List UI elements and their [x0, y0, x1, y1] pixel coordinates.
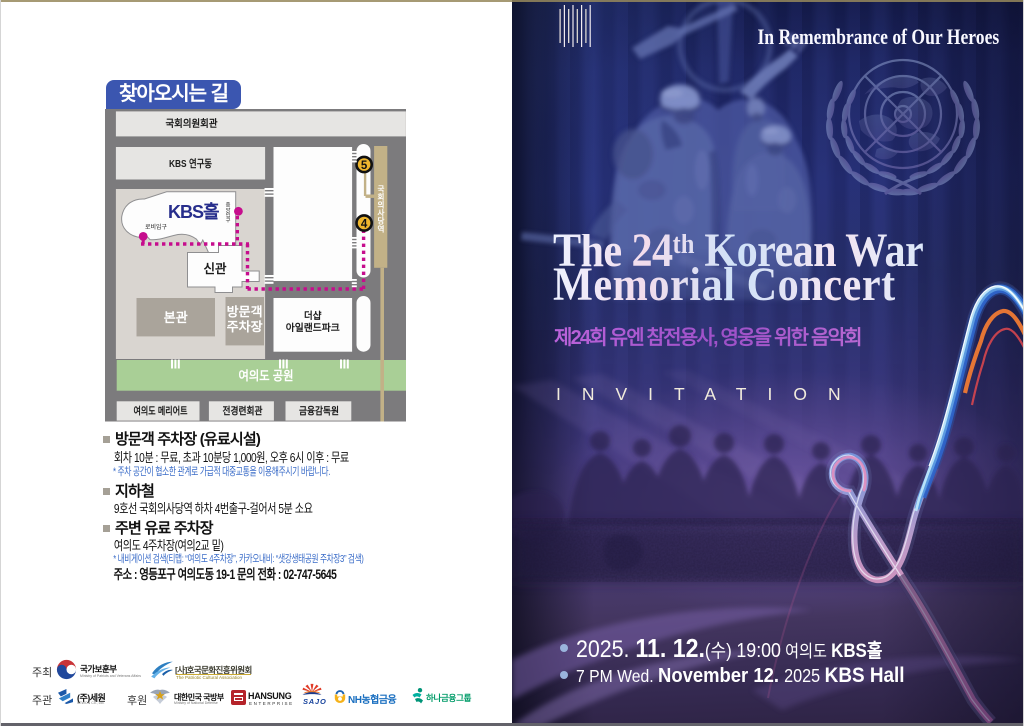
svg-text:아일랜드파크: 아일랜드파크 [286, 322, 340, 334]
svg-text:전경련회관: 전경련회관 [223, 405, 264, 418]
svg-text:금융감독원: 금융감독원 [299, 405, 339, 418]
svg-text:여의도 메리어트: 여의도 메리어트 [134, 405, 188, 418]
svg-text:KBS홀: KBS홀 [168, 201, 219, 222]
svg-text:주차장: 주차장 [227, 319, 264, 334]
svg-text:더샵: 더샵 [304, 310, 322, 322]
svg-text:방문객: 방문객 [227, 304, 263, 319]
svg-text:국회의사당역: 국회의사당역 [377, 185, 386, 234]
svg-text:4: 4 [361, 218, 368, 230]
svg-text:중앙입구: 중앙입구 [225, 202, 231, 225]
svg-text:KBS 연구동: KBS 연구동 [169, 157, 212, 170]
svg-text:신관: 신관 [203, 261, 227, 276]
svg-text:여의도 공원: 여의도 공원 [239, 368, 294, 383]
svg-text:본관: 본관 [164, 310, 188, 325]
svg-text:5: 5 [361, 160, 368, 172]
svg-text:국회의원회관: 국회의원회관 [166, 117, 219, 130]
svg-text:로비입구: 로비입구 [145, 223, 168, 231]
